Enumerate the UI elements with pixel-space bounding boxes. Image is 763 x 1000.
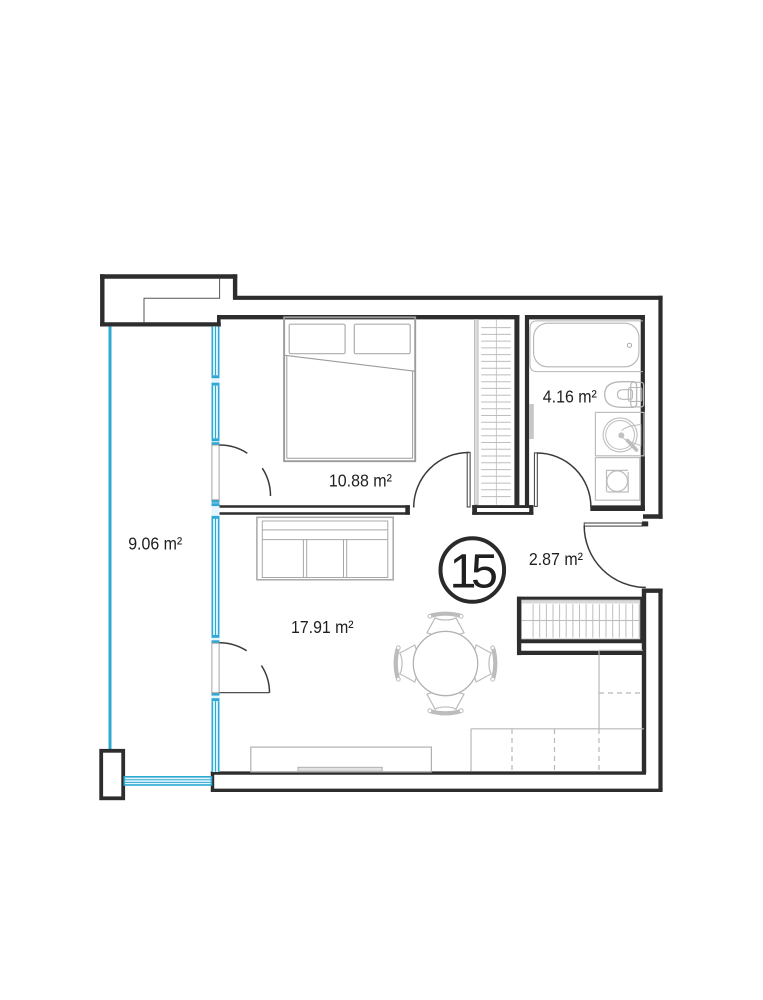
svg-text:4.16 m²: 4.16 m²	[543, 386, 597, 406]
svg-text:2.87 m²: 2.87 m²	[529, 549, 583, 569]
svg-text:15: 15	[449, 545, 498, 599]
svg-text:9.06 m²: 9.06 m²	[128, 534, 182, 554]
svg-text:17.91 m²: 17.91 m²	[291, 617, 354, 637]
svg-text:10.88 m²: 10.88 m²	[329, 471, 392, 491]
